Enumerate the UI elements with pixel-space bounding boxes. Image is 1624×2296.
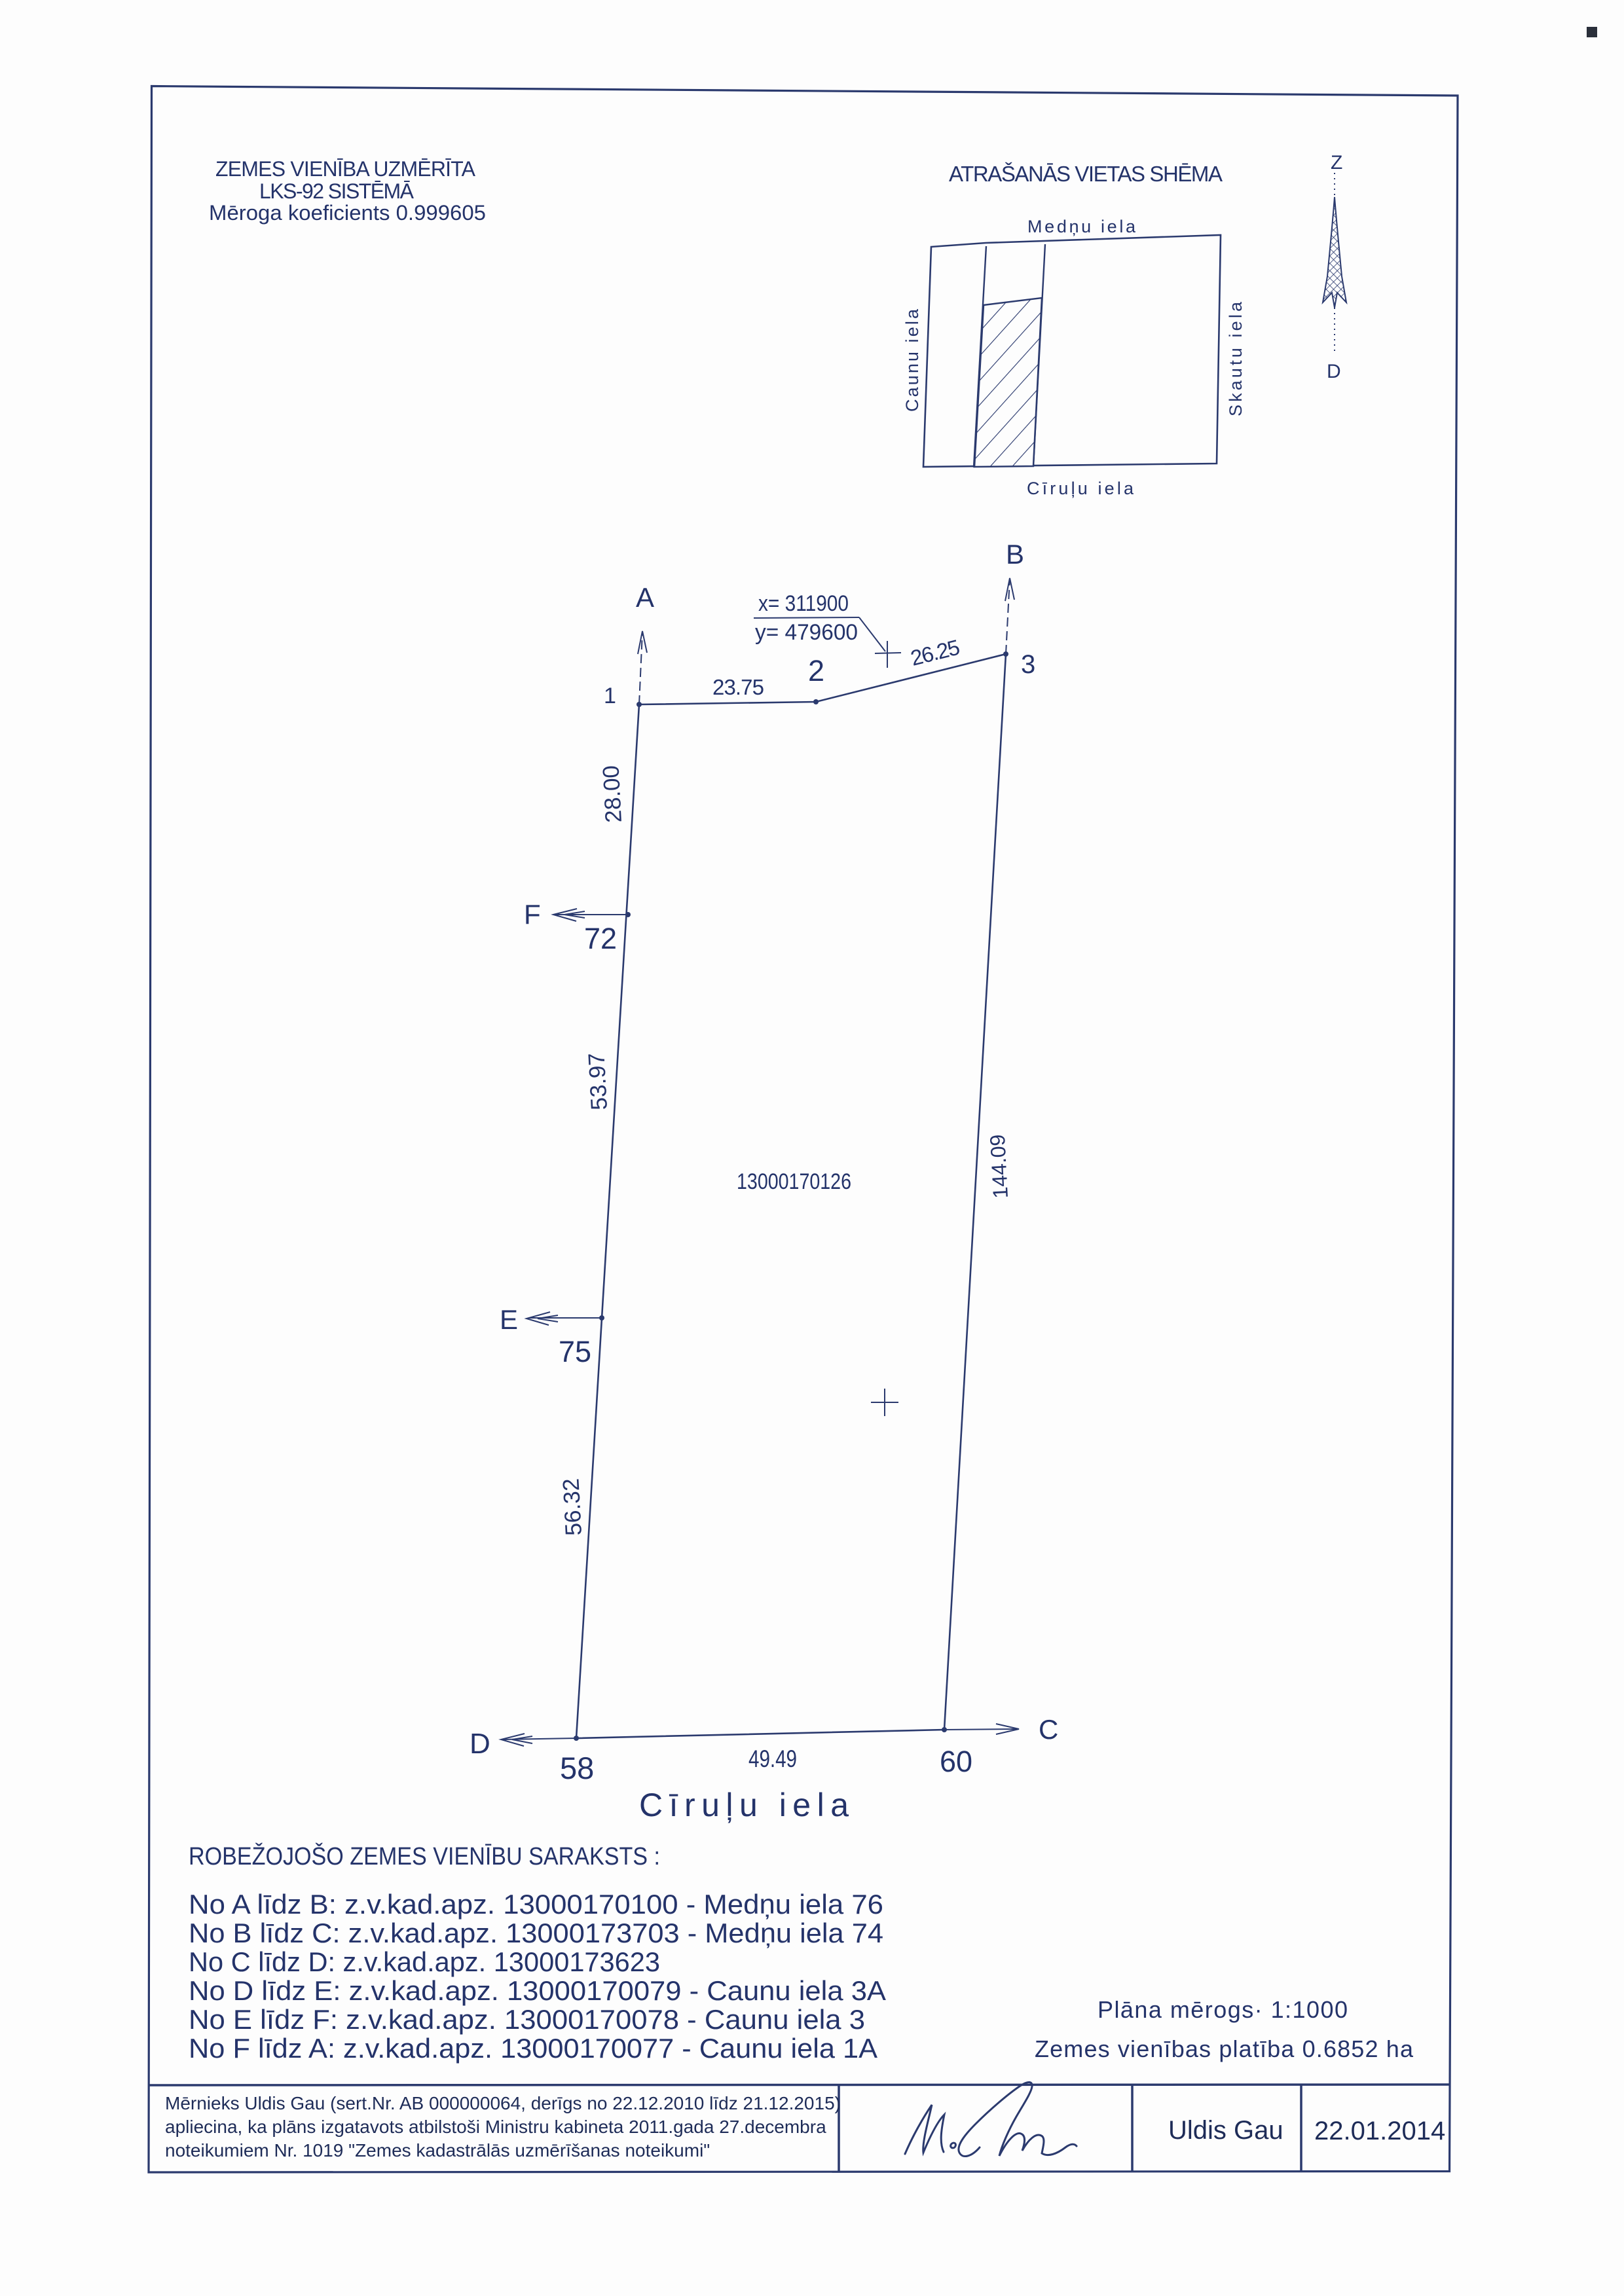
svg-text:No A līdz B: z.v.kad.apz.: No A līdz B: z.v.kad.apz. 13000170100 - … <box>189 1889 883 1920</box>
svg-text:Plāna mērogs· 1:1000: Plāna mērogs· 1:1000 <box>1098 1996 1348 2023</box>
svg-text:Mērnieks Uldis Gau (sert.Nr. A: Mērnieks Uldis Gau (sert.Nr. AB 00000006… <box>165 2093 841 2113</box>
svg-text:Mēroga koeficients 0.999605: Mēroga koeficients 0.999605 <box>209 201 486 225</box>
svg-text:x= 311900: x= 311900 <box>758 591 849 616</box>
svg-text:D: D <box>470 1728 490 1760</box>
svg-text:D: D <box>1327 361 1341 382</box>
svg-text:49.49: 49.49 <box>748 1745 797 1772</box>
svg-text:apliecina, ka plāns izgatavots: apliecina, ka plāns izgatavots atbilstoš… <box>165 2117 826 2137</box>
svg-text:A: A <box>636 582 654 613</box>
svg-text:Cīruļu iela: Cīruļu iela <box>1027 479 1135 498</box>
svg-text:58: 58 <box>560 1751 594 1785</box>
svg-text:E: E <box>500 1304 518 1335</box>
svg-text:Skautu iela: Skautu iela <box>1226 300 1246 416</box>
svg-text:No E līdz F: z.v.kad.apz.: No E līdz F: z.v.kad.apz. 13000170078 - … <box>189 2004 865 2035</box>
svg-text:noteikumiem Nr. 1019 "Zemes ka: noteikumiem Nr. 1019 "Zemes kadastrālās … <box>165 2140 710 2160</box>
svg-text:1: 1 <box>604 683 616 708</box>
svg-text:B: B <box>1006 539 1024 570</box>
svg-text:Uldis Gau: Uldis Gau <box>1168 2116 1283 2145</box>
svg-text:C: C <box>1039 1714 1058 1745</box>
svg-text:Z: Z <box>1331 152 1342 173</box>
svg-text:22.01.2014: 22.01.2014 <box>1314 2117 1445 2145</box>
svg-text:53.97: 53.97 <box>583 1052 612 1111</box>
svg-text:56.32: 56.32 <box>558 1478 587 1537</box>
svg-text:3: 3 <box>1021 650 1035 679</box>
svg-text:F: F <box>524 899 541 930</box>
svg-text:No D līdz E: z.v.kad.apz.: No D līdz E: z.v.kad.apz. 13000170079 - … <box>189 1975 886 2006</box>
svg-text:Cīruļu iela: Cīruļu iela <box>639 1787 854 1823</box>
svg-text:26.25: 26.25 <box>908 635 963 670</box>
svg-text:y= 479600: y= 479600 <box>755 620 858 645</box>
svg-text:72: 72 <box>584 922 617 955</box>
svg-text:No B līdz C: z.v.kad.apz.: No B līdz C: z.v.kad.apz. 13000173703 - … <box>189 1918 883 1948</box>
svg-text:75: 75 <box>559 1335 591 1368</box>
svg-text:ZEMES VIENĪBA UZMĒRĪTA: ZEMES VIENĪBA UZMĒRĪTA <box>215 157 477 181</box>
svg-text:60: 60 <box>940 1745 972 1778</box>
svg-text:No F līdz A: z.v.kad.apz.: No F līdz A: z.v.kad.apz. 13000170077 - … <box>189 2033 877 2064</box>
svg-text:Zemes vienības platība 0.68: Zemes vienības platība 0.6852 ha <box>1035 2035 1414 2062</box>
svg-text:ATRAŠANĀS VIETAS SHĒMA: ATRAŠANĀS VIETAS SHĒMA <box>949 162 1225 186</box>
svg-text:Caunu iela: Caunu iela <box>902 307 922 412</box>
svg-text:28.00: 28.00 <box>598 765 627 824</box>
svg-text:ROBEŽOJOŠO ZEMES VIENĪBU SA: ROBEŽOJOŠO ZEMES VIENĪBU SARAKSTS : <box>189 1842 660 1870</box>
svg-text:2: 2 <box>808 654 824 687</box>
svg-text:13000170126: 13000170126 <box>737 1169 851 1194</box>
svg-text:No C līdz D: z.v.kad.apz.: No C līdz D: z.v.kad.apz. 13000173623 <box>189 1946 660 1977</box>
svg-text:Medņu iela: Medņu iela <box>1027 217 1137 236</box>
svg-text:23.75: 23.75 <box>712 675 764 699</box>
svg-text:LKS-92 SISTĒMĀ: LKS-92 SISTĒMĀ <box>259 179 415 203</box>
svg-text:144.09: 144.09 <box>986 1134 1012 1199</box>
